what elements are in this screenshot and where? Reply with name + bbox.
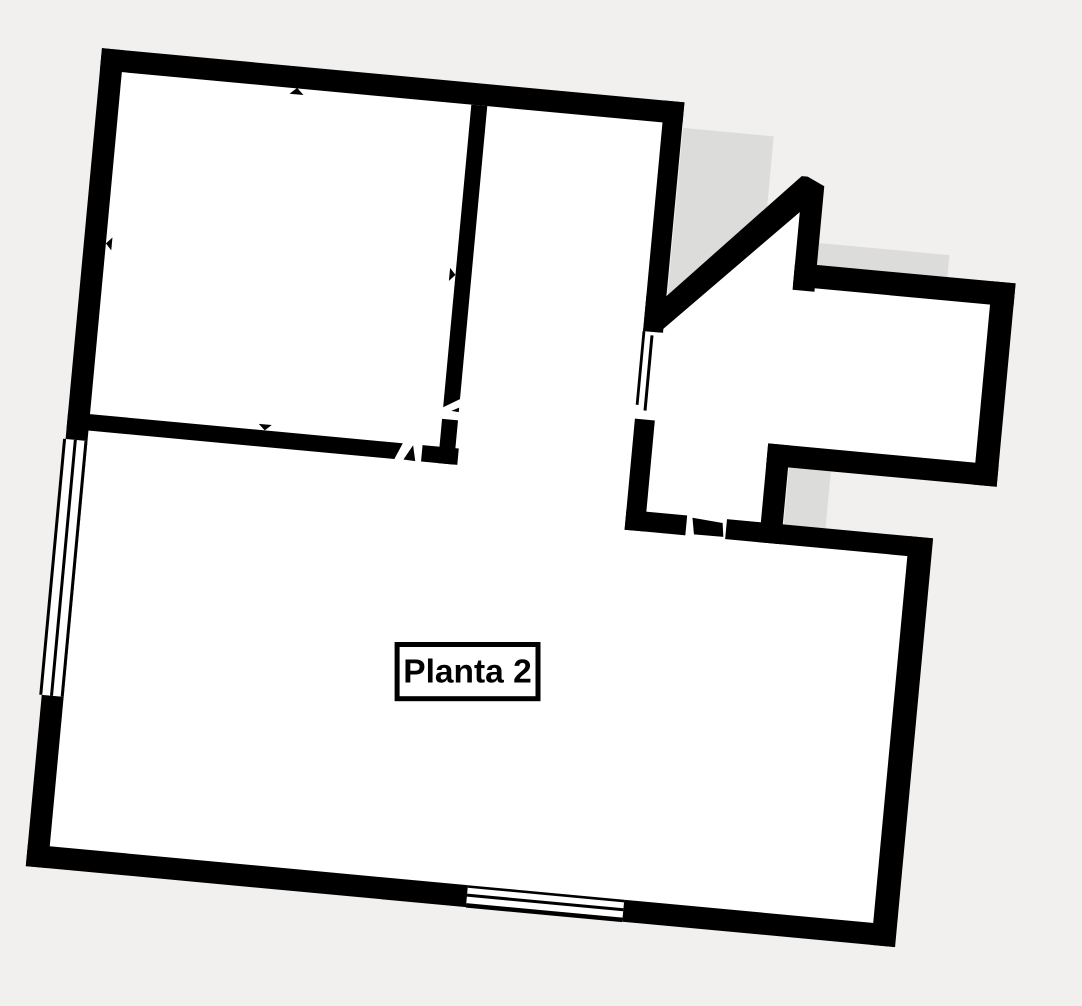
svg-text:Planta 2: Planta 2 [403,654,531,691]
